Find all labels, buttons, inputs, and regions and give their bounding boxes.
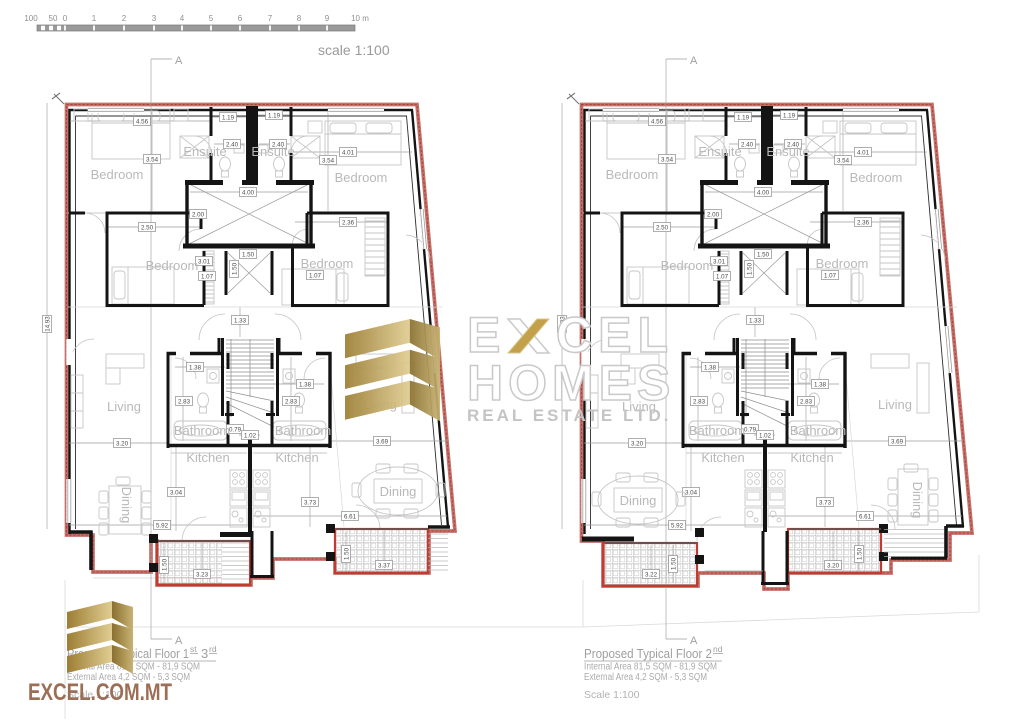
svg-text:6: 6 [238, 14, 243, 23]
svg-text:3: 3 [152, 14, 157, 23]
svg-text:2: 2 [122, 14, 127, 23]
svg-text:scale 1:100: scale 1:100 [318, 42, 390, 58]
svg-text:Dining: Dining [910, 482, 925, 519]
svg-text:3.23: 3.23 [196, 571, 209, 578]
svg-text:100: 100 [24, 14, 38, 23]
svg-text:REAL ESTATE LTD.: REAL ESTATE LTD. [467, 406, 671, 425]
svg-text:A: A [690, 55, 698, 67]
svg-text:9: 9 [325, 14, 330, 23]
svg-text:HOMES: HOMES [467, 355, 675, 411]
svg-text:8: 8 [297, 14, 302, 23]
svg-text:1.50: 1.50 [161, 558, 168, 571]
svg-text:5: 5 [209, 14, 214, 23]
svg-text:Dining: Dining [119, 487, 134, 524]
svg-text:Dining: Dining [380, 484, 417, 499]
svg-text:1: 1 [92, 14, 97, 23]
svg-text:External Area 4,2 SQM - 5,3 SQ: External Area 4,2 SQM - 5,3 SQM [584, 672, 707, 683]
svg-text:50: 50 [49, 14, 58, 23]
svg-text:1.50: 1.50 [343, 547, 350, 560]
svg-text:EXCEL.COM.MT: EXCEL.COM.MT [28, 679, 172, 706]
svg-text:0: 0 [63, 14, 68, 23]
svg-text:7: 7 [268, 14, 273, 23]
svg-text:3: 3 [201, 646, 208, 661]
svg-text:rd: rd [209, 644, 217, 654]
svg-text:1.50: 1.50 [856, 547, 863, 560]
svg-text:Proposed Typical Floor 2: Proposed Typical Floor 2 [584, 646, 712, 661]
svg-text:Dining: Dining [620, 493, 657, 508]
svg-text:nd: nd [713, 644, 723, 654]
svg-text:4: 4 [180, 14, 185, 23]
svg-text:st: st [190, 644, 197, 654]
svg-text:Internal Area 81,5 SQM - 81,9: Internal Area 81,5 SQM - 81,9 SQM [584, 662, 717, 673]
svg-text:10 m: 10 m [351, 14, 369, 23]
svg-text:Scale 1:100: Scale 1:100 [584, 689, 640, 701]
svg-text:3.22: 3.22 [645, 571, 658, 578]
svg-text:3.37: 3.37 [378, 562, 391, 569]
svg-text:A: A [175, 55, 183, 67]
svg-text:1.50: 1.50 [670, 557, 677, 570]
svg-text:3.20: 3.20 [827, 562, 840, 569]
